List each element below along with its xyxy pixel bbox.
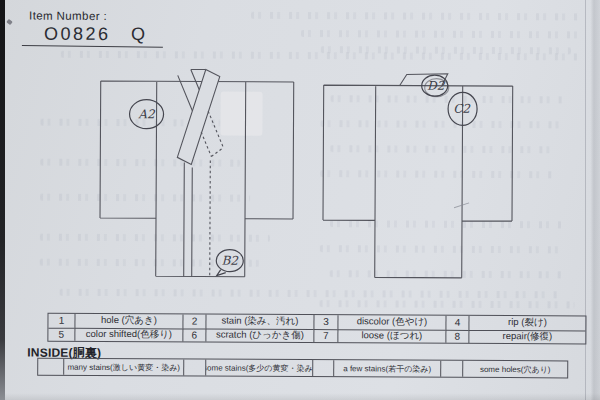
- defect-code-cell: 7: [313, 329, 337, 343]
- paper-right-edge: [584, 0, 600, 400]
- defect-code-cell: 6: [182, 328, 205, 342]
- defect-label-cell: repair(修復): [468, 329, 585, 343]
- defect-label-cell: color shifted(色移り): [74, 327, 182, 341]
- defect-label-cell: scratch (ひっかき傷): [205, 328, 313, 342]
- marker-c2-label: C2: [453, 102, 471, 116]
- inside-label-cell: many stains(激しい黄変・染み): [63, 359, 183, 376]
- defect-code-cell: 1: [48, 314, 74, 328]
- inside-checkbox-cell: [312, 360, 333, 376]
- paper-fold-line: [585, 0, 586, 400]
- defect-label-cell: rip (裂け): [468, 316, 585, 330]
- inside-checkbox-cell: [38, 359, 63, 375]
- scanned-sheet: Item Number : O0826 Q A2 B2: [0, 0, 600, 400]
- scan-left-edge: [0, 0, 5, 400]
- defect-code-cell: 5: [48, 327, 74, 341]
- defect-code-table: 1hole (穴あき)2stain (染み、汚れ)3discolor (色やけ)…: [47, 313, 586, 345]
- marker-b2-label: B2: [222, 254, 240, 268]
- inside-label-cell: some holes(穴あり): [462, 361, 567, 378]
- defect-label-cell: loose (ほつれ): [337, 329, 445, 343]
- marker-d2-label: D2: [427, 79, 446, 93]
- marker-a2-label: A2: [137, 107, 156, 121]
- inside-checkbox-cell: [183, 359, 205, 375]
- paper: Item Number : O0826 Q A2 B2: [0, 0, 600, 400]
- defect-code-cell: 4: [445, 316, 468, 330]
- paper-bottom-shadow: [0, 393, 600, 400]
- inside-label-cell: some stains(多少の黄変・染み): [205, 360, 312, 377]
- inside-label-cell: a few stains(若干の染み): [333, 360, 440, 377]
- defect-label-cell: stain (染み、汚れ): [205, 315, 313, 329]
- front-center-dotted-seam: [210, 161, 211, 277]
- defect-label-cell: discolor (色やけ): [337, 315, 445, 329]
- inside-checkbox-cell: [440, 361, 462, 377]
- kimono-front-diagram: A2 B2: [100, 69, 294, 277]
- inside-condition-table: many stains(激しい黄変・染み)some stains(多少の黄変・染…: [37, 358, 568, 379]
- kimono-back-diagram: D2 C2: [323, 73, 513, 278]
- defect-code-cell: 3: [313, 315, 337, 329]
- erasure-patch: [220, 92, 262, 136]
- defect-label-cell: hole (穴あき): [74, 314, 182, 328]
- defect-code-cell: 8: [445, 329, 468, 343]
- defect-code-cell: 2: [182, 314, 205, 328]
